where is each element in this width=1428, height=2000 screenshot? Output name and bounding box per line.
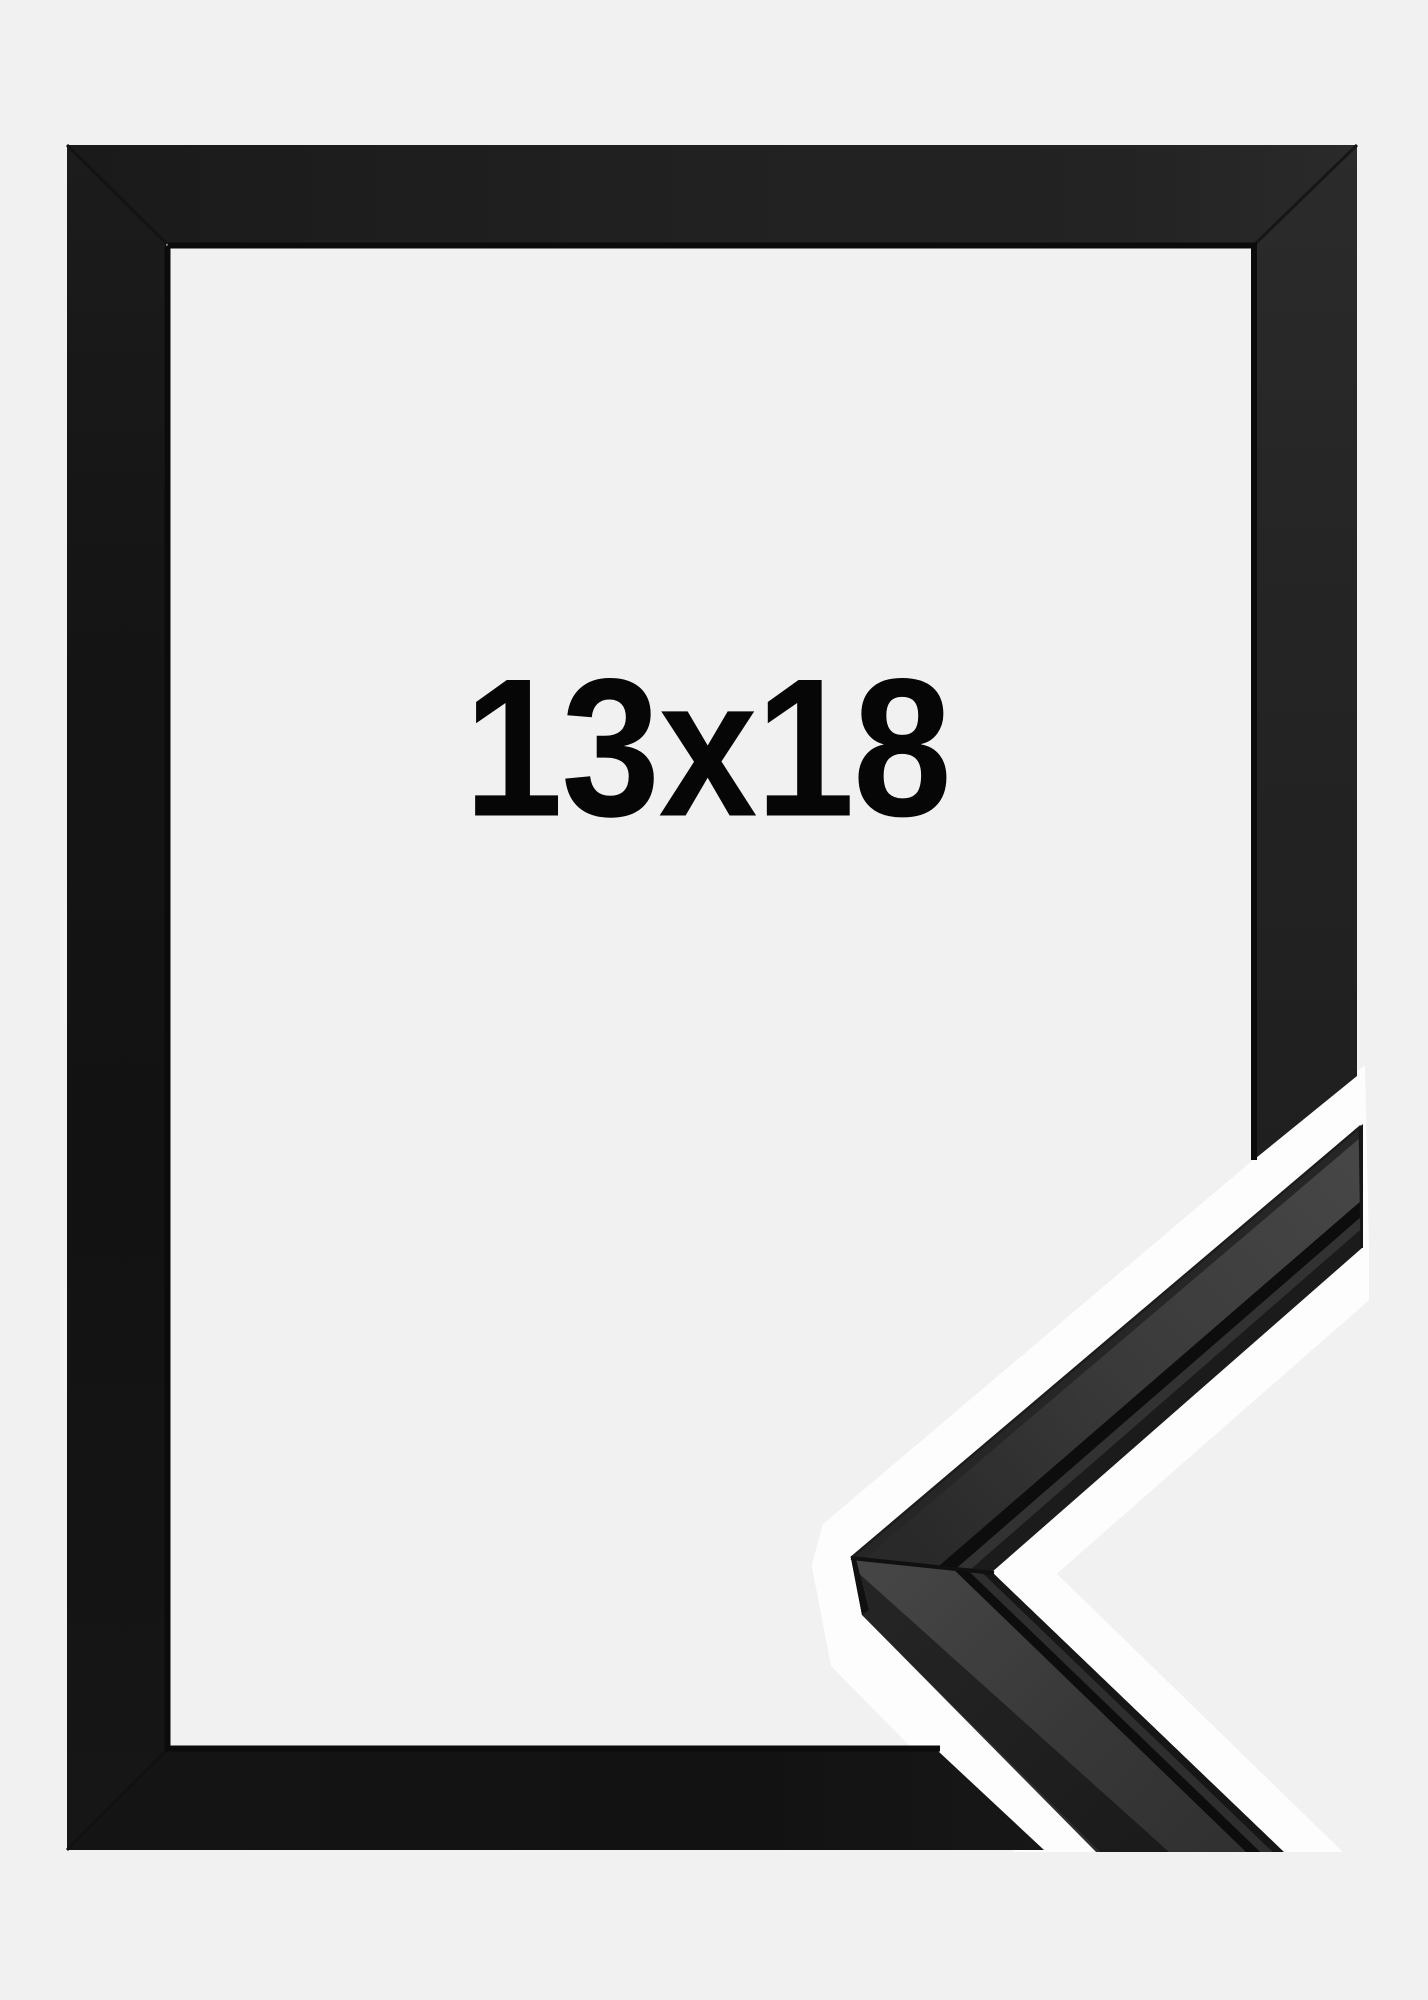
svg-text:13x18: 13x18	[464, 637, 950, 857]
